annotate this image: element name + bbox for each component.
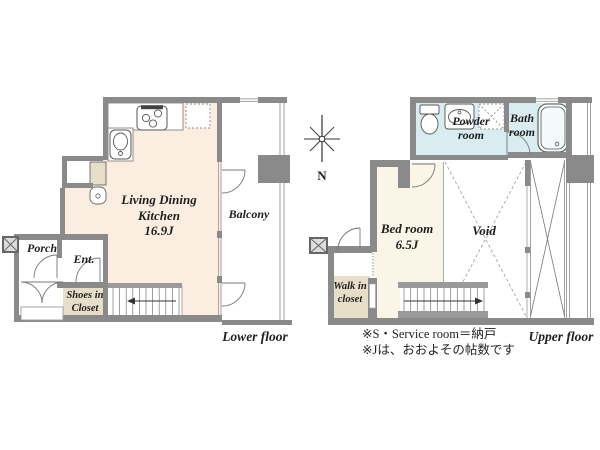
- footnote-service-room: ※S・Service room＝納戸: [362, 327, 515, 343]
- upper-outer-edge: [588, 103, 591, 318]
- floor-plan-drawing: [0, 0, 600, 450]
- toilet-icon: [420, 105, 439, 134]
- lower-top-window: [240, 97, 258, 103]
- bathtub-icon: [538, 104, 568, 152]
- crossed-box-icon: [3, 237, 18, 252]
- ldk-label: Living Dining Kitchen 16.9J: [121, 192, 197, 239]
- stove-icon: [137, 105, 167, 130]
- cross-brace-shaft: [531, 160, 570, 318]
- bedroom-label: Bed room 6.5J: [381, 221, 433, 252]
- bath-room-label: Bath room: [509, 111, 535, 139]
- shoes-closet-label: Shoes in Closet: [66, 290, 103, 315]
- compass-icon: [304, 115, 340, 162]
- column-block: [566, 155, 594, 183]
- walk-in-closet-label: Walk in closet: [333, 281, 366, 306]
- balcony-label: Balcony: [229, 207, 270, 222]
- utility-box: [90, 162, 106, 185]
- balcony-outer-edge: [280, 103, 284, 320]
- north-label: N: [317, 168, 326, 183]
- powder-room-label: Powder room: [452, 114, 489, 142]
- footnote-jou: ※Jは、おおよその帖数です: [362, 343, 515, 359]
- bedroom-size: 6.5J: [381, 237, 433, 253]
- hall-area: [332, 251, 370, 278]
- ldk-size: 16.9J: [121, 223, 197, 239]
- basin-icon: [90, 187, 106, 204]
- kitchen-sink-icon: [110, 130, 131, 159]
- upper-top-window: [536, 97, 558, 103]
- footnotes: ※S・Service room＝納戸 ※Jは、おおよその帖数です: [362, 327, 515, 358]
- porch-step: [21, 307, 63, 320]
- upper-floor-caption: Upper floor: [529, 329, 594, 344]
- refrigerator-space: [186, 104, 210, 128]
- void-label: Void: [472, 223, 496, 239]
- stairs-upper: [398, 282, 488, 318]
- lower-floor-caption: Lower floor: [222, 329, 288, 344]
- closet-opening: [370, 284, 376, 308]
- floor-plan-canvas: Living Dining Kitchen 16.9J Balcony Porc…: [0, 0, 600, 450]
- porch-label: Porch: [27, 241, 57, 256]
- column-block: [258, 155, 290, 183]
- entrance-label: Ent.: [73, 252, 94, 267]
- stairs-lower: [107, 283, 182, 316]
- crossed-box-icon: [310, 238, 327, 253]
